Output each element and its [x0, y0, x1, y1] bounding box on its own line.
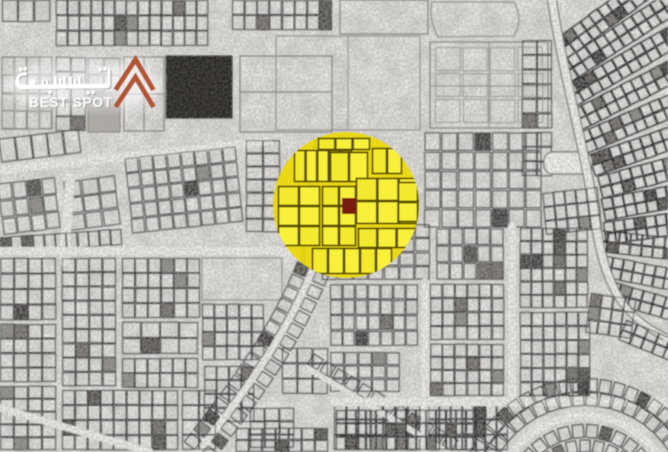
svg-text:BEST SPOT: BEST SPOT — [29, 95, 113, 110]
